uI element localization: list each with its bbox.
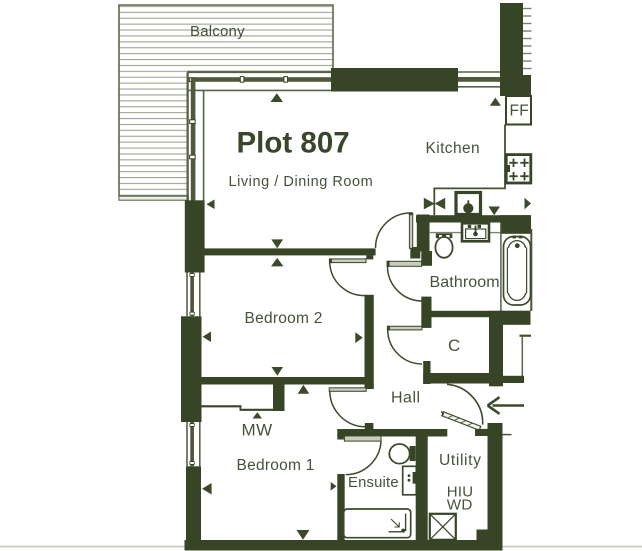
svg-text:C: C [448,336,460,355]
svg-text:Balcony: Balcony [190,23,245,40]
svg-text:Ensuite: Ensuite [348,475,399,491]
svg-text:WD: WD [447,496,473,513]
svg-text:Bedroom 1: Bedroom 1 [237,457,315,474]
svg-text:Living / Dining Room: Living / Dining Room [229,174,374,190]
svg-text:FF: FF [510,103,530,120]
svg-text:Utility: Utility [439,452,482,469]
svg-text:Plot 807: Plot 807 [237,126,350,159]
svg-text:Bedroom 2: Bedroom 2 [245,310,323,327]
svg-text:MW: MW [242,421,273,440]
svg-text:Hall: Hall [391,390,421,407]
svg-text:Kitchen: Kitchen [426,140,481,157]
svg-text:Bathroom: Bathroom [430,274,500,291]
